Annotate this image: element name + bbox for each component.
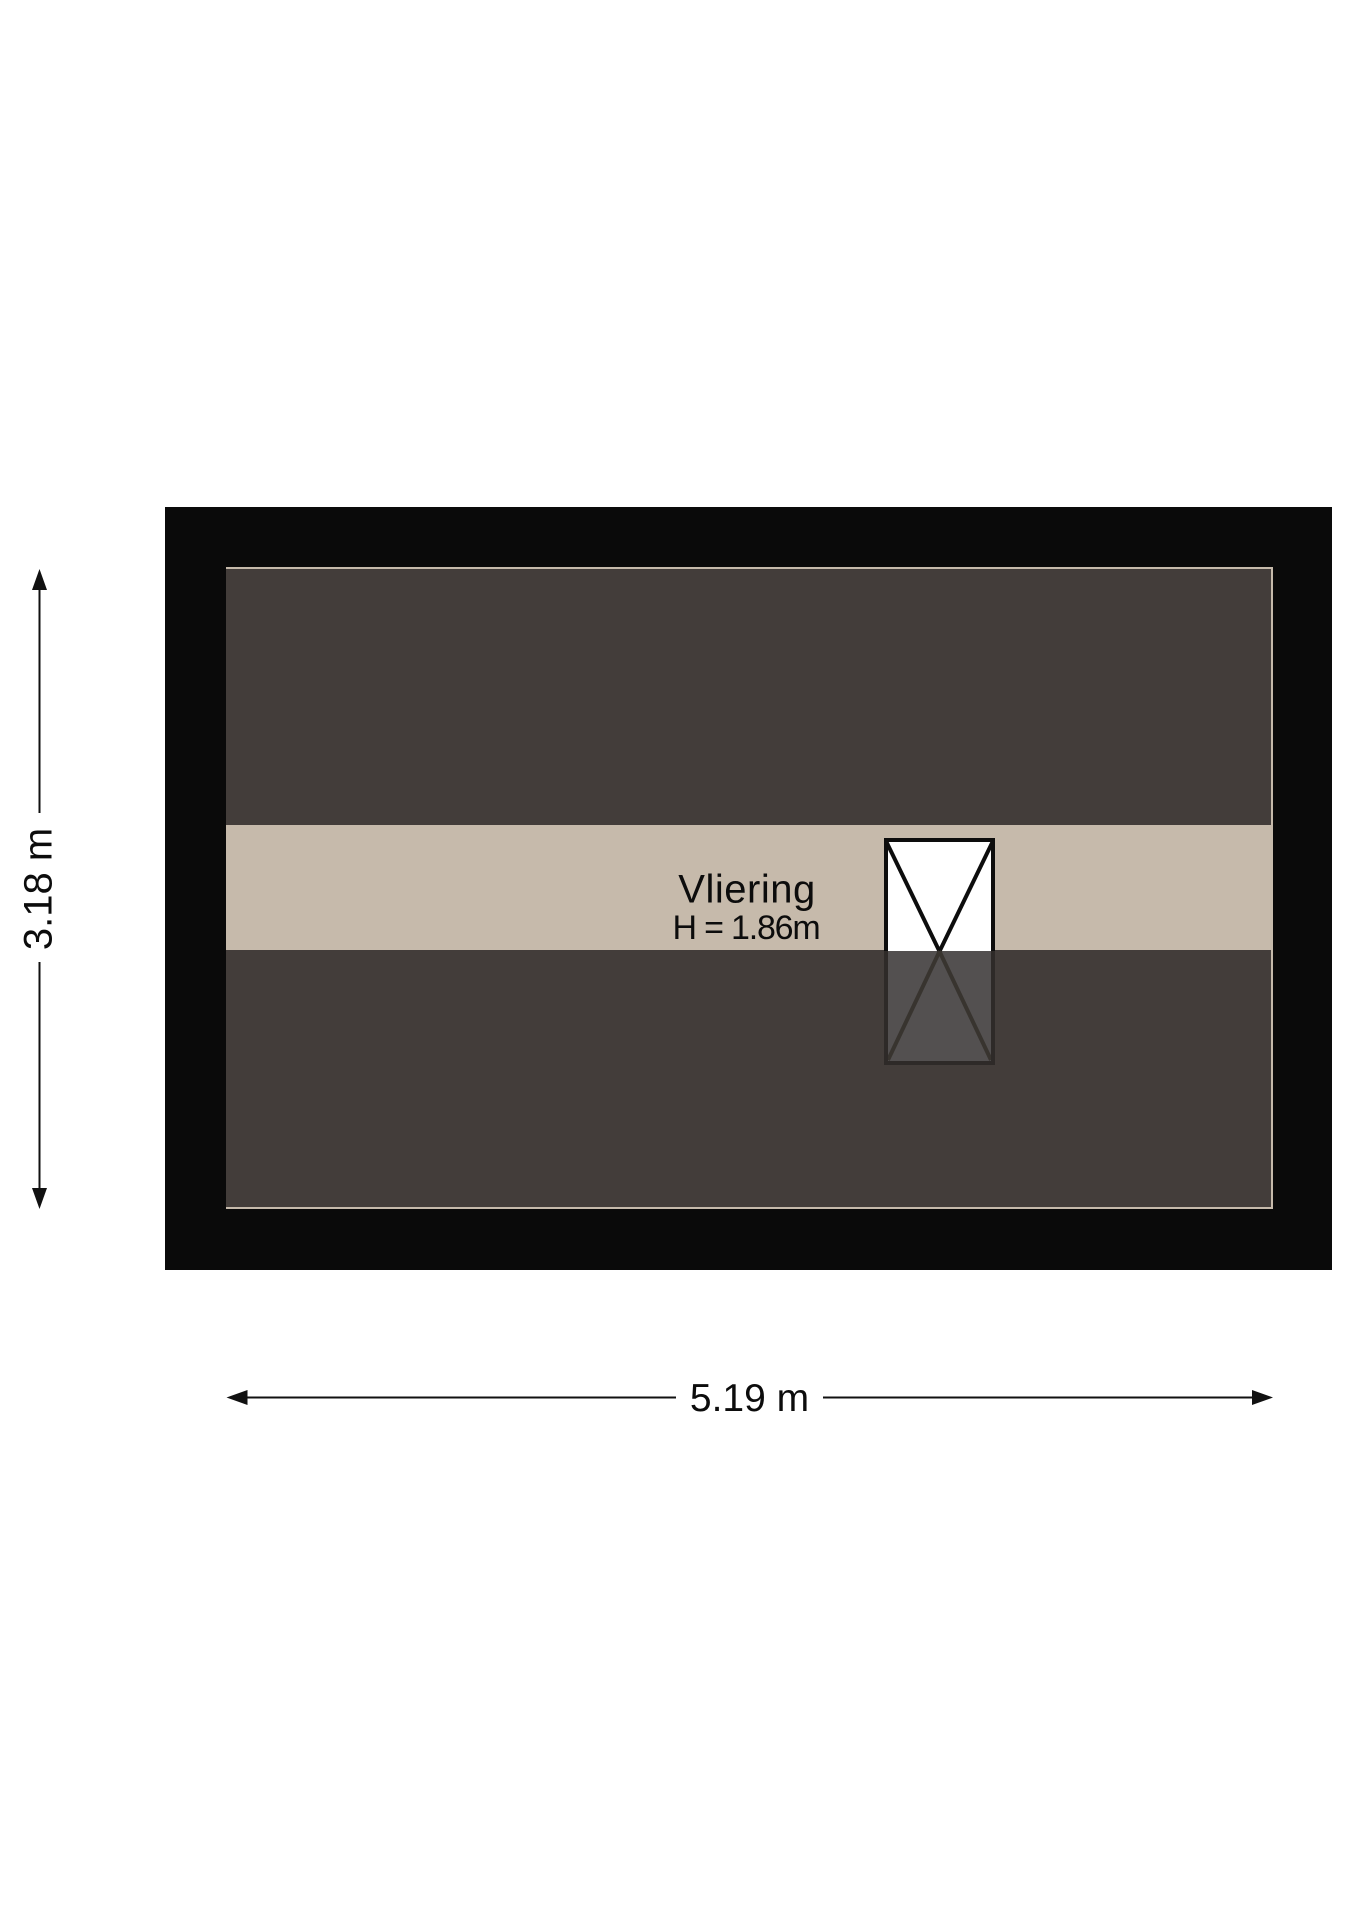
svg-text:H = 1.86m: H = 1.86m [673,909,820,947]
svg-text:5.19 m: 5.19 m [690,1377,809,1420]
svg-text:Vliering: Vliering [678,868,815,912]
svg-text:3.18 m: 3.18 m [17,828,61,950]
